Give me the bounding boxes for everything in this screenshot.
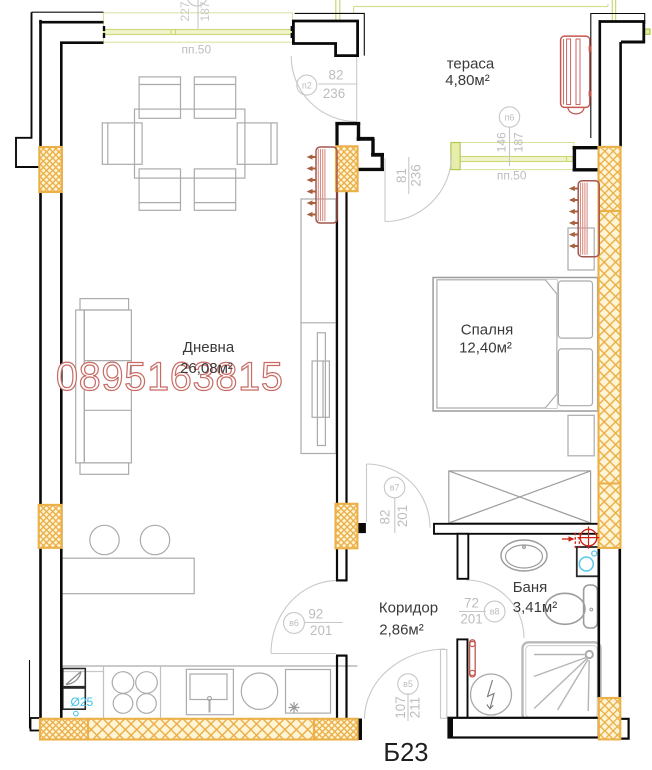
svg-text:201: 201 <box>310 623 332 638</box>
svg-text:тераса: тераса <box>447 56 495 73</box>
svg-text:в7: в7 <box>390 483 400 493</box>
svg-text:в6: в6 <box>289 618 299 628</box>
svg-text:пп.50: пп.50 <box>181 43 211 57</box>
svg-text:26,08м²: 26,08м² <box>180 360 233 377</box>
svg-text:236: 236 <box>408 164 423 186</box>
svg-text:211: 211 <box>407 697 422 718</box>
svg-text:92: 92 <box>308 607 323 622</box>
svg-text:Баня: Баня <box>513 579 548 596</box>
svg-text:пп.50: пп.50 <box>497 169 527 183</box>
svg-text:3,41м²: 3,41м² <box>513 599 558 616</box>
svg-text:187: 187 <box>198 1 212 21</box>
svg-text:72: 72 <box>464 596 479 611</box>
svg-text:81: 81 <box>394 168 409 183</box>
svg-text:187: 187 <box>511 132 525 152</box>
svg-text:201: 201 <box>395 505 410 527</box>
svg-text:п2: п2 <box>302 80 312 90</box>
svg-text:236: 236 <box>323 86 345 101</box>
svg-text:227: 227 <box>178 1 192 21</box>
svg-text:2,86м²: 2,86м² <box>379 622 424 639</box>
svg-text:107: 107 <box>393 696 408 718</box>
svg-text:Б23: Б23 <box>383 739 428 767</box>
svg-text:Спалня: Спалня <box>461 321 513 338</box>
svg-text:82: 82 <box>329 68 344 83</box>
svg-text:12,40м²: 12,40м² <box>459 340 512 357</box>
svg-text:в5: в5 <box>403 679 413 689</box>
svg-text:в8: в8 <box>490 607 500 617</box>
svg-text:Коридор: Коридор <box>379 600 438 617</box>
svg-text:82: 82 <box>377 510 392 525</box>
svg-text:146: 146 <box>494 132 508 152</box>
svg-text:201: 201 <box>460 612 482 627</box>
svg-text:п6: п6 <box>505 112 515 122</box>
svg-text:4,80м²: 4,80м² <box>445 72 490 89</box>
svg-text:Ø25: Ø25 <box>71 695 94 709</box>
svg-text:0895163815: 0895163815 <box>56 355 284 399</box>
svg-text:Дневна: Дневна <box>183 339 235 356</box>
